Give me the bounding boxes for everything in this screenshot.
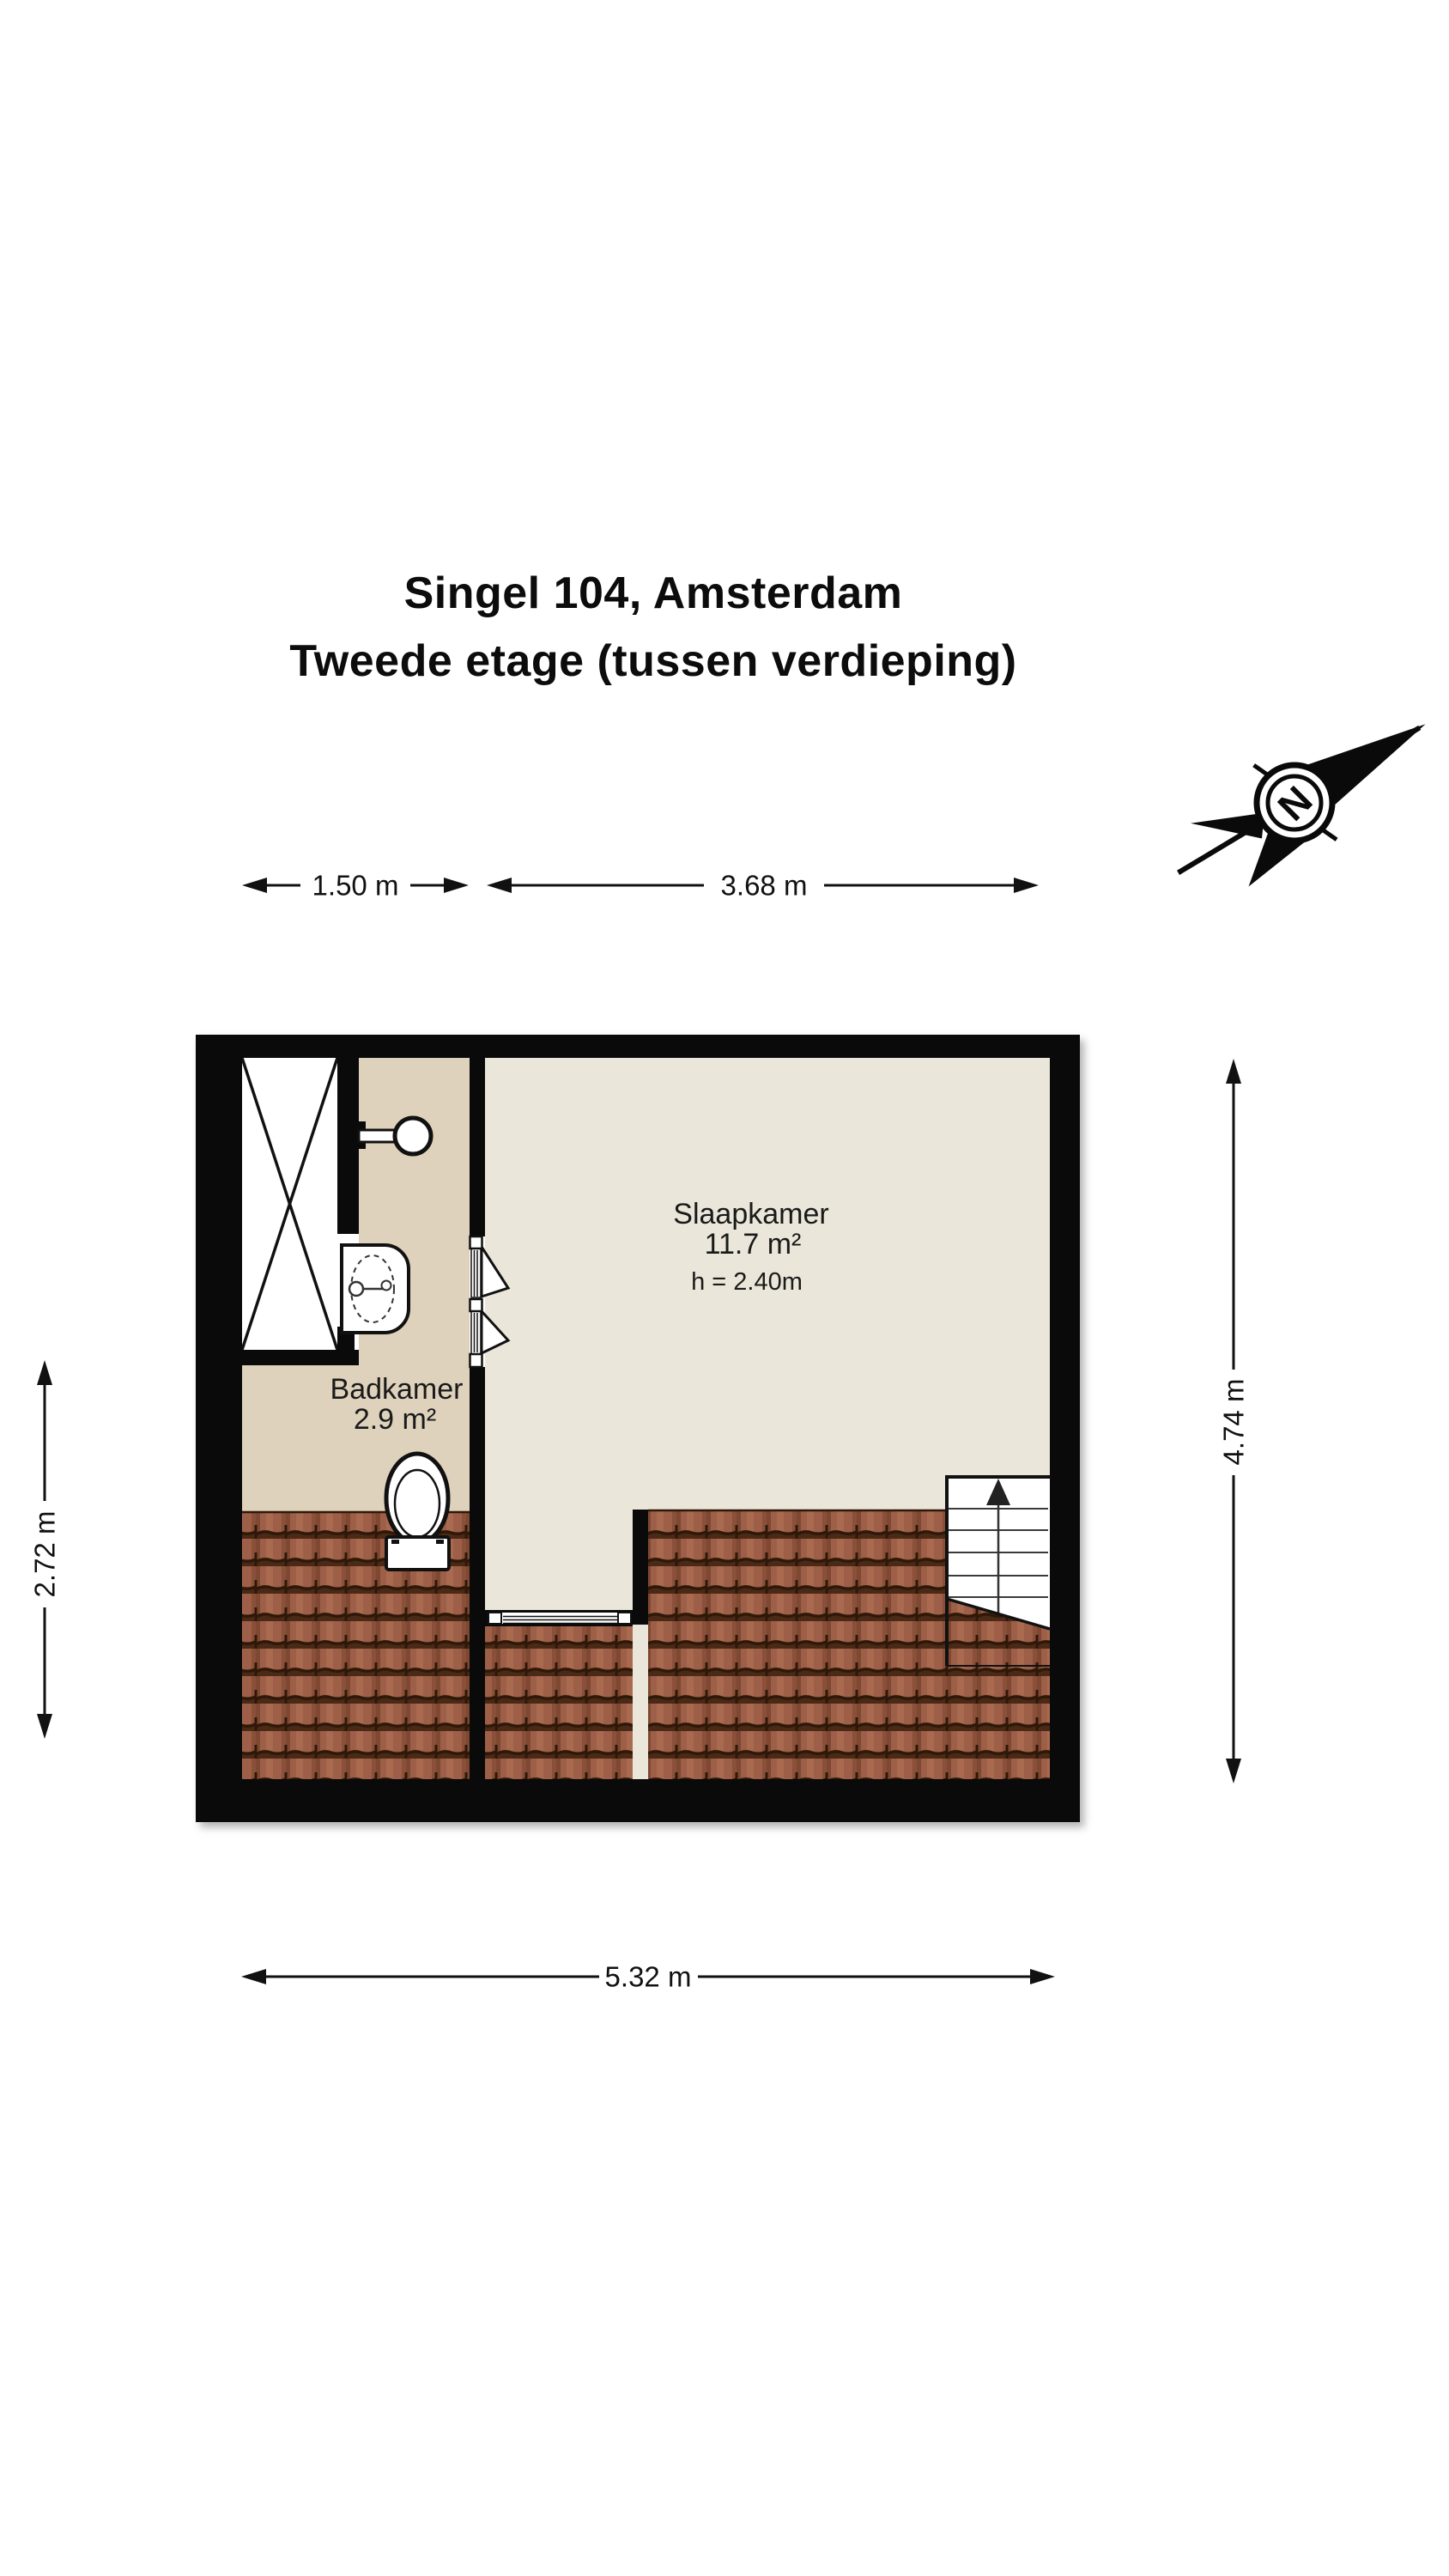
wall <box>470 1367 485 1779</box>
page-title-line2: Tweede etage (tussen verdieping) <box>181 628 1125 696</box>
dimension-top-right-label: 3.68 m <box>721 871 808 900</box>
floor-plan: Slaapkamer 11.7 m² h = 2.40m Badkamer 2.… <box>196 1035 1080 1822</box>
dimension-right-label: 4.74 m <box>1218 1379 1250 1466</box>
sink <box>342 1245 409 1333</box>
slaapkamer-label: Slaapkamer <box>673 1198 828 1230</box>
dimension-top-left: 1.50 m <box>232 871 481 900</box>
dimension-left: 2.72 m <box>24 1350 65 1749</box>
dimension-left-label: 2.72 m <box>29 1511 61 1598</box>
dimension-top-left-label: 1.50 m <box>312 871 399 900</box>
floorplan-page: Singel 104, Amsterdam Tweede etage (tuss… <box>0 0 1449 2576</box>
page-title-line1: Singel 104, Amsterdam <box>181 560 1125 628</box>
slaapkamer-area: 11.7 m² <box>705 1228 802 1261</box>
dimension-top-right: 3.68 m <box>476 871 1052 900</box>
compass-north-icon: N <box>1159 683 1442 897</box>
outer-wall-bottom <box>196 1779 1080 1822</box>
outer-wall-left <box>196 1035 242 1822</box>
badkamer-label: Badkamer <box>330 1373 464 1406</box>
wall <box>470 1058 485 1236</box>
badkamer-area: 2.9 m² <box>354 1403 436 1436</box>
staircase <box>947 1477 1050 1666</box>
dimension-bottom-label: 5.32 m <box>605 1962 692 1991</box>
page-title: Singel 104, Amsterdam Tweede etage (tuss… <box>181 560 1125 696</box>
outer-wall-top <box>196 1035 1080 1058</box>
outer-wall-right <box>1050 1035 1080 1822</box>
dimension-bottom: 5.32 m <box>230 1962 1067 1991</box>
wall <box>242 1350 359 1365</box>
slaapkamer-ceiling-height: h = 2.40m <box>691 1268 803 1296</box>
toilet <box>386 1454 449 1570</box>
dimension-right: 4.74 m <box>1213 1048 1254 1794</box>
wall <box>633 1510 648 1625</box>
roof-tiles-slaapkamer-left <box>485 1625 633 1779</box>
knee-window <box>485 1610 633 1626</box>
